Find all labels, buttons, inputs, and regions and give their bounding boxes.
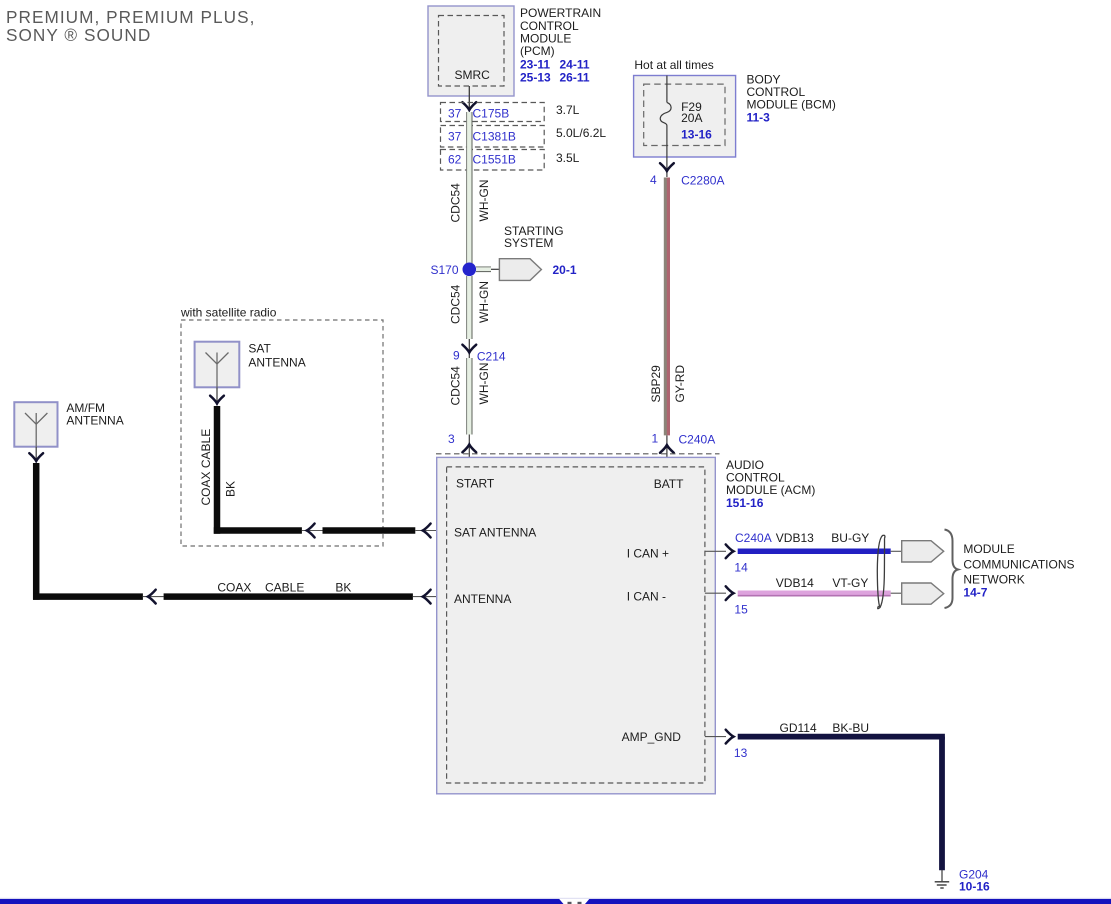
svg-text:9: 9 <box>453 349 460 363</box>
svg-text:WH-GN: WH-GN <box>477 363 491 405</box>
svg-text:VDB14: VDB14 <box>776 576 814 590</box>
svg-text:START: START <box>456 477 495 491</box>
svg-text:I CAN +: I CAN + <box>627 547 669 561</box>
svg-text:Hot at all times: Hot at all times <box>634 58 713 72</box>
svg-text:BU-GY: BU-GY <box>831 531 869 545</box>
svg-text:(PCM): (PCM) <box>520 44 555 58</box>
svg-text:23-11: 23-11 <box>520 58 550 72</box>
svg-text:37: 37 <box>448 107 462 121</box>
svg-text:COAX: COAX <box>217 581 251 595</box>
svg-text:GD114: GD114 <box>780 721 817 735</box>
svg-text:1: 1 <box>652 432 659 446</box>
svg-text:BK-BU: BK-BU <box>832 721 869 735</box>
svg-text:62: 62 <box>448 153 462 167</box>
svg-text:37: 37 <box>448 130 462 144</box>
svg-text:14-7: 14-7 <box>963 586 987 600</box>
svg-text:3.5L: 3.5L <box>556 151 580 165</box>
svg-text:CABLE: CABLE <box>265 581 304 595</box>
svg-text:C1381B: C1381B <box>473 130 516 144</box>
svg-text:20A: 20A <box>681 111 702 125</box>
svg-text:ANTENNA: ANTENNA <box>248 356 305 370</box>
svg-text:C175B: C175B <box>473 107 510 121</box>
svg-text:15: 15 <box>734 603 748 617</box>
svg-text:S170: S170 <box>431 263 459 277</box>
svg-text:13: 13 <box>734 746 748 760</box>
svg-text:4: 4 <box>650 173 657 187</box>
svg-text:C214: C214 <box>477 350 506 364</box>
svg-text:3.7L: 3.7L <box>556 103 580 117</box>
svg-text:25-13: 25-13 <box>520 71 551 85</box>
svg-text:with satellite radio: with satellite radio <box>180 306 277 320</box>
svg-text:ANTENNA: ANTENNA <box>66 414 123 428</box>
svg-text:CDC54: CDC54 <box>449 183 463 223</box>
svg-text:POWERTRAIN: POWERTRAIN <box>520 6 601 20</box>
svg-text:WH-GN: WH-GN <box>477 281 491 323</box>
svg-text:MODULE: MODULE <box>963 542 1014 556</box>
svg-text:CDC54: CDC54 <box>449 284 463 324</box>
svg-text:13-16: 13-16 <box>681 128 712 142</box>
svg-text:BATT: BATT <box>654 477 684 491</box>
svg-text:C2280A: C2280A <box>681 174 724 188</box>
svg-text:COMMUNICATIONS: COMMUNICATIONS <box>963 558 1074 572</box>
svg-text:SAT ANTENNA: SAT ANTENNA <box>454 526 536 540</box>
svg-text:C1551B: C1551B <box>473 153 516 167</box>
svg-text:C240A: C240A <box>679 433 716 447</box>
svg-text:PREMIUM, PREMIUM PLUS,: PREMIUM, PREMIUM PLUS, <box>6 7 255 27</box>
svg-text:5.0L/6.2L: 5.0L/6.2L <box>556 126 606 140</box>
svg-text:BK: BK <box>224 481 238 497</box>
svg-text:SONY ® SOUND: SONY ® SOUND <box>6 25 151 45</box>
svg-text:14: 14 <box>734 561 748 575</box>
svg-text:24-11: 24-11 <box>560 58 590 72</box>
svg-text:SMRC: SMRC <box>455 68 491 82</box>
svg-text:11-3: 11-3 <box>747 111 771 125</box>
svg-text:3: 3 <box>448 432 455 446</box>
svg-text:COAX CABLE: COAX CABLE <box>199 429 213 506</box>
svg-text:SYSTEM: SYSTEM <box>504 236 553 250</box>
svg-text:NETWORK: NETWORK <box>963 573 1024 587</box>
svg-text:26-11: 26-11 <box>560 71 590 85</box>
svg-text:20-1: 20-1 <box>553 263 577 277</box>
svg-text:C240A: C240A <box>735 531 772 545</box>
svg-text:VDB13: VDB13 <box>776 531 814 545</box>
svg-text:WH-GN: WH-GN <box>477 180 491 222</box>
svg-text:BK: BK <box>335 581 351 595</box>
svg-text:SBP29: SBP29 <box>649 365 663 403</box>
svg-text:I CAN -: I CAN - <box>627 590 666 604</box>
svg-text:VT-GY: VT-GY <box>832 576 868 590</box>
svg-text:10-16: 10-16 <box>959 880 990 894</box>
svg-text:CDC54: CDC54 <box>449 366 463 406</box>
svg-text:SAT: SAT <box>248 342 271 356</box>
svg-text:GY-RD: GY-RD <box>673 365 687 403</box>
svg-text:151-16: 151-16 <box>726 496 764 510</box>
svg-text:AMP_GND: AMP_GND <box>622 730 682 744</box>
svg-text:MODULE (BCM): MODULE (BCM) <box>747 98 836 112</box>
svg-text:MODULE (ACM): MODULE (ACM) <box>726 483 815 497</box>
svg-text:ANTENNA: ANTENNA <box>454 592 511 606</box>
